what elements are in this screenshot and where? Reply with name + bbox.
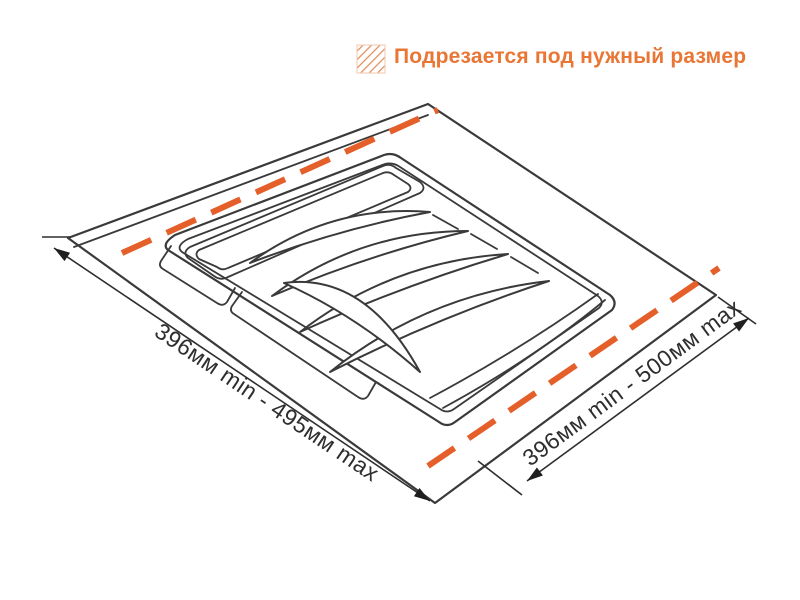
arrowhead [54, 248, 70, 261]
divider-step [433, 215, 458, 229]
side-tabs [160, 246, 376, 399]
diagram-page: 396мм min - 495мм max 396мм min - 500мм … [0, 0, 800, 600]
dimension-left-label: 396мм min - 495мм max [150, 318, 384, 487]
dimension-left: 396мм min - 495мм max [42, 237, 430, 501]
header-label: Подрезается под нужный размер [394, 45, 746, 69]
tray-diagram-svg: 396мм min - 495мм max 396мм min - 500мм … [0, 0, 800, 600]
divider-step [471, 234, 497, 249]
trim-dash-top-left [122, 110, 438, 253]
divider-step [511, 257, 538, 273]
extension-line [478, 461, 522, 495]
dimension-right: 396мм min - 500мм max [478, 294, 756, 495]
scoop-wall [443, 300, 605, 408]
header: Подрезается под нужный размер [355, 43, 746, 71]
tray-top-left-inner-edge [74, 115, 428, 247]
